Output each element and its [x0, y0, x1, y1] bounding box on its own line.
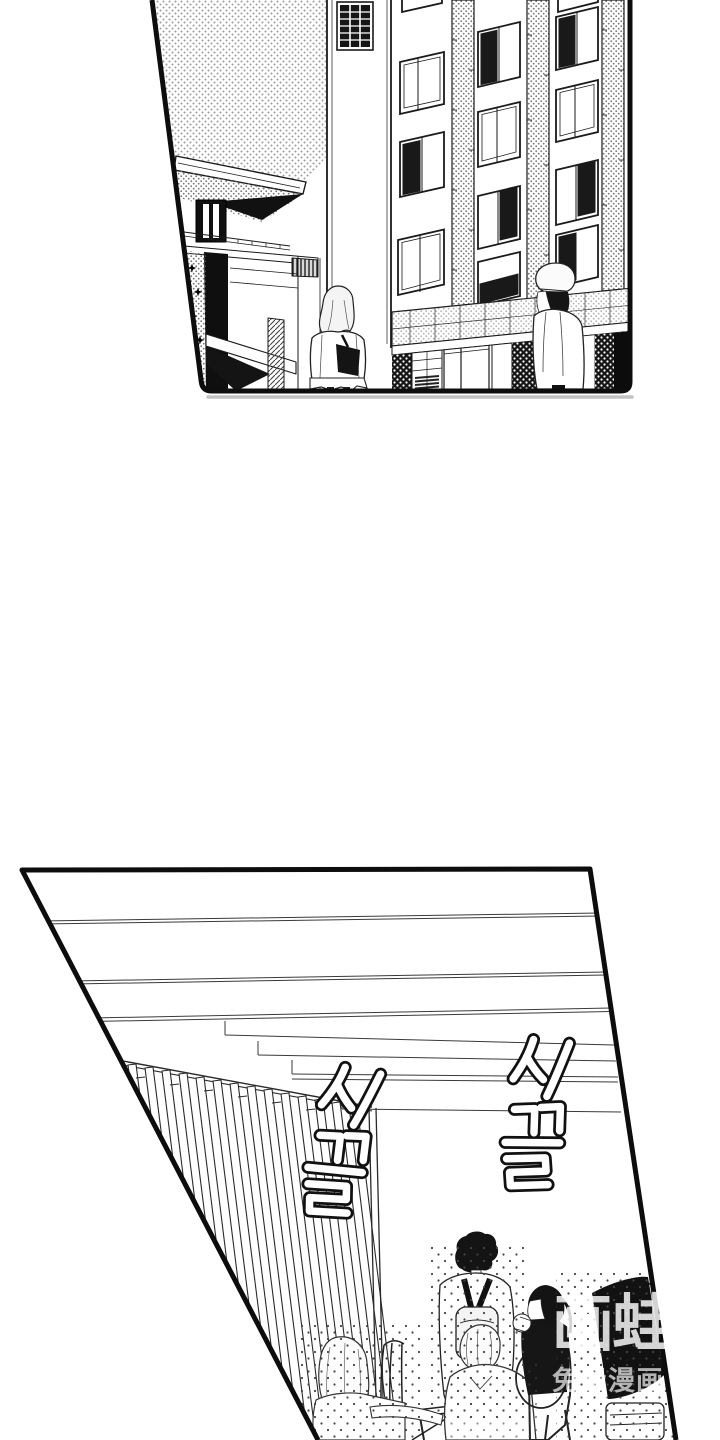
- tall-building: [326, 0, 633, 391]
- grid-window: [337, 2, 373, 50]
- panel-1-artwork: [0, 0, 720, 410]
- manga-page: 시끌 시끌 画蛙 免费漫画: [0, 0, 720, 1440]
- panel-2-artwork: [0, 855, 720, 1440]
